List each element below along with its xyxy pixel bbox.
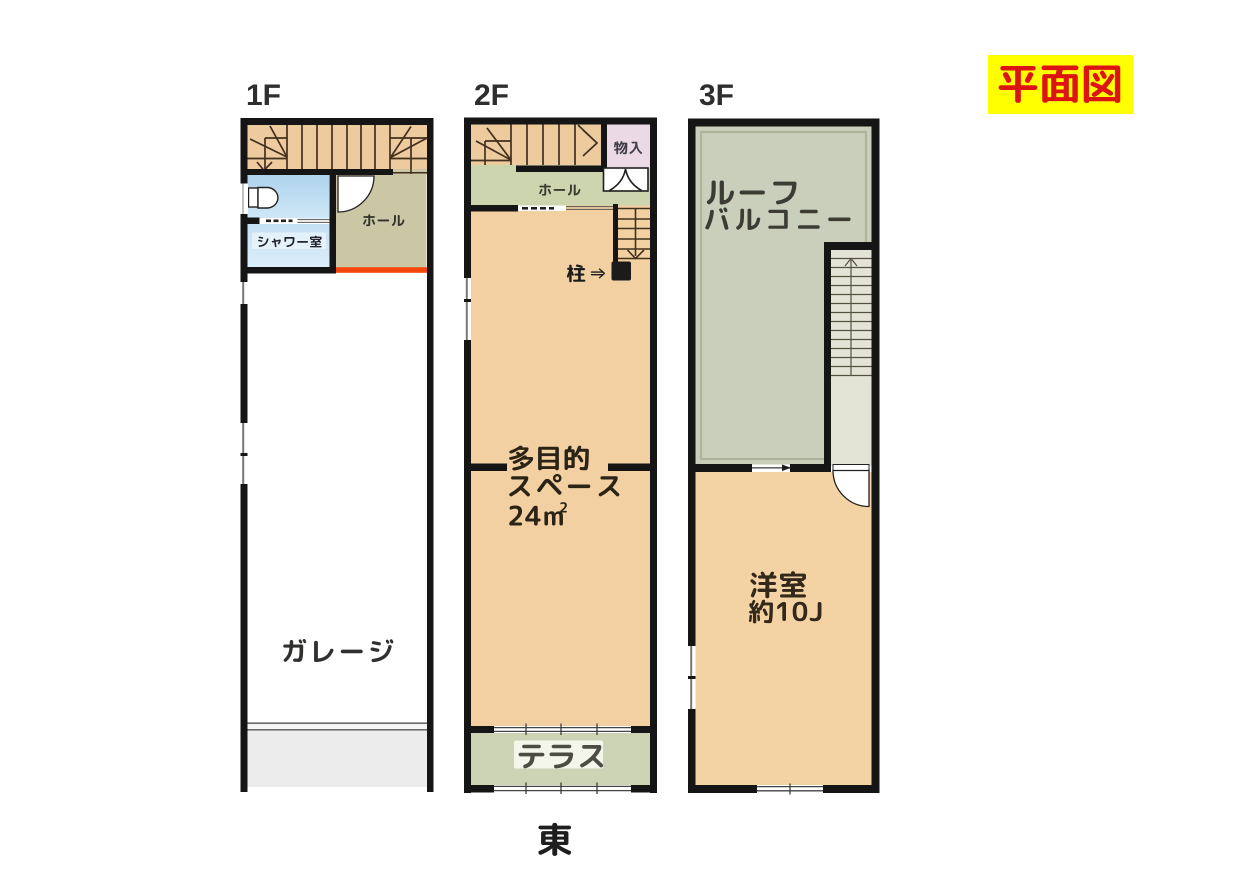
svg-text:3F: 3F xyxy=(699,79,734,112)
svg-text:2F: 2F xyxy=(474,79,509,112)
svg-text:1F: 1F xyxy=(246,79,281,112)
